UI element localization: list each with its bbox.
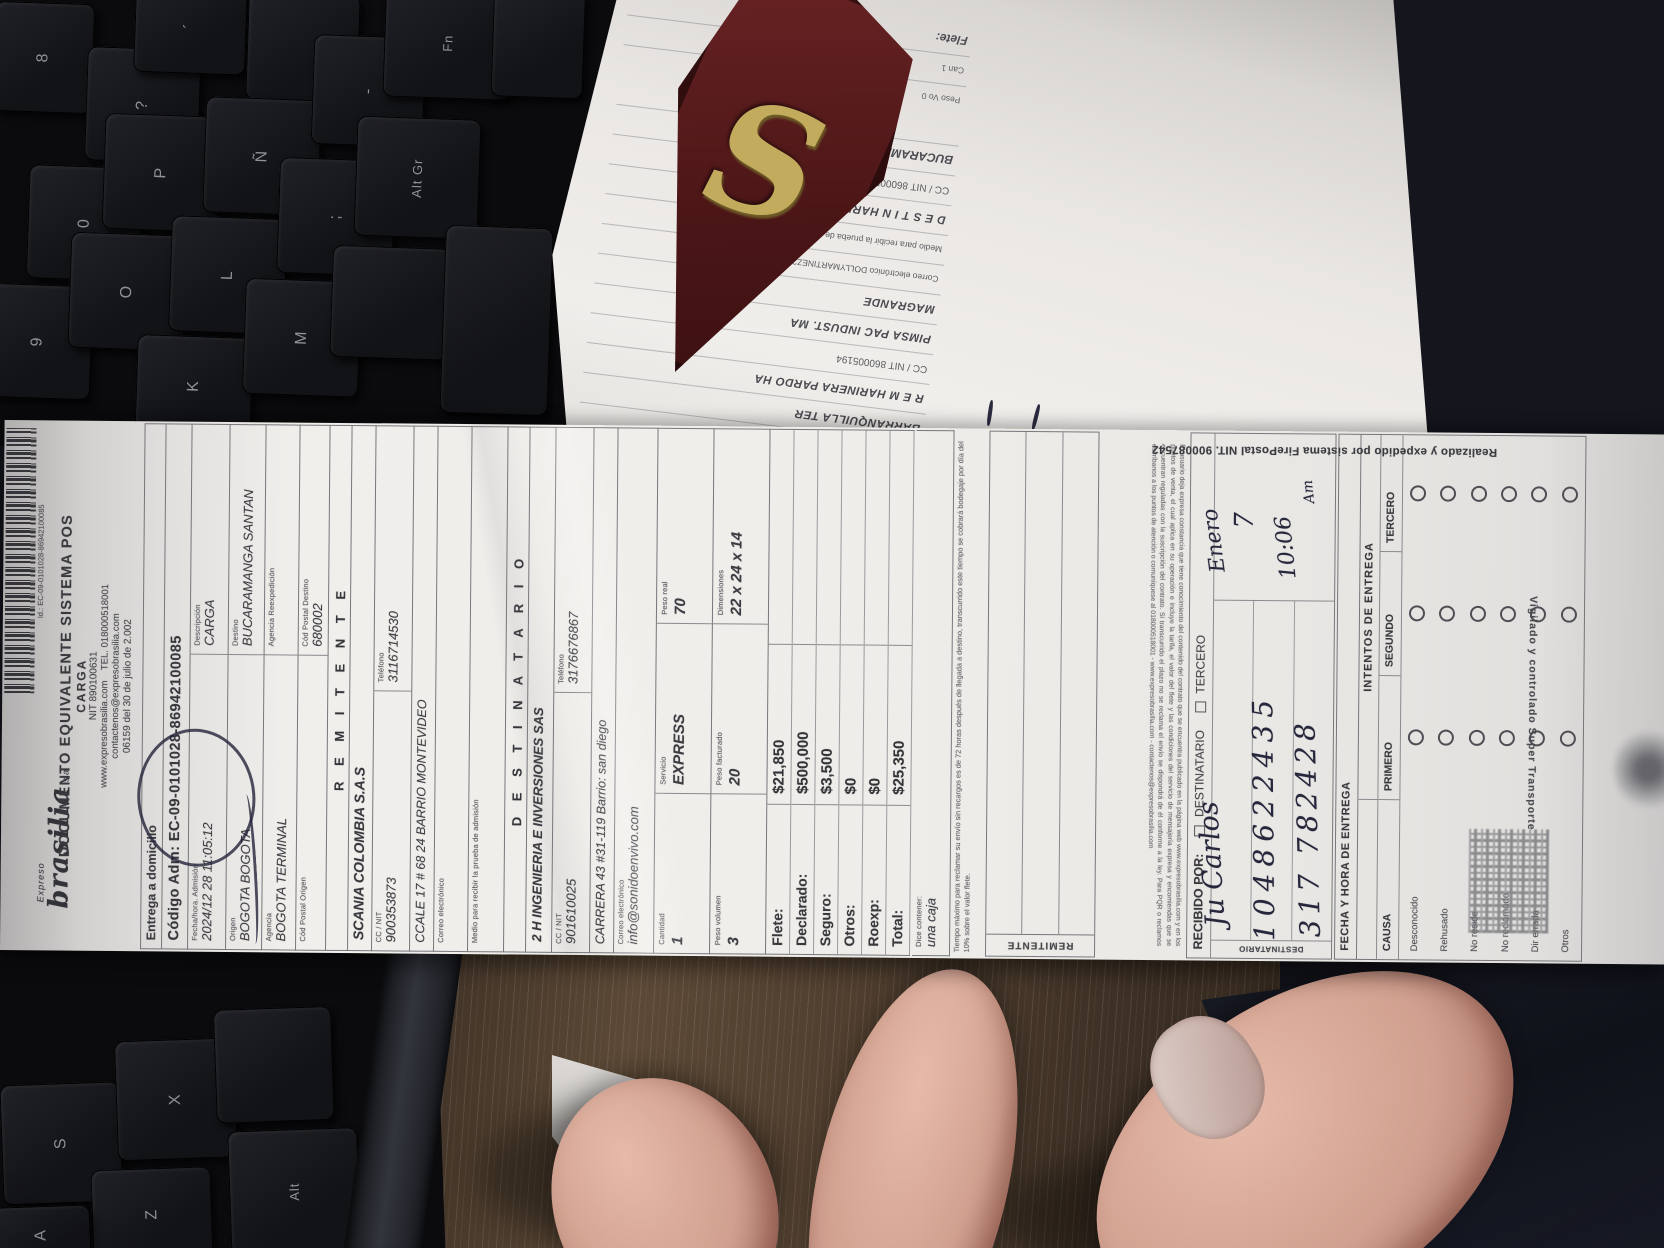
attempt-circle xyxy=(1561,607,1577,623)
charge-row-total: Total: $25,350 xyxy=(886,431,915,955)
key-label: ´ xyxy=(182,22,200,29)
dimensions-value: 22 x 24 x 14 xyxy=(728,429,747,615)
attempts-title-spacer xyxy=(1357,799,1377,959)
photo-scene: 8 ? 0 9 ´ P O Ñ L K - ; M Fn Alt Gr Cód.… xyxy=(0,0,1664,1248)
legal-note-upside-down: El usuario deja expresa constancia que t… xyxy=(1098,444,1186,947)
attempt-circle xyxy=(1438,730,1454,746)
sender-phone: 3116714530 xyxy=(385,426,402,682)
attempt-circle xyxy=(1439,606,1455,622)
key-label: Alt xyxy=(286,1182,302,1201)
charges-table: Flete: $21,850 Declarado: $500,000 Segur… xyxy=(766,429,915,956)
charge-value: $3,500 xyxy=(815,644,839,804)
attempt-circle xyxy=(1409,605,1425,621)
sender-signature-cells xyxy=(986,432,1098,935)
shipping-receipt: Id.: EC-09-0101028-86942100085 Expreso b… xyxy=(0,420,1664,965)
key-label: Fn xyxy=(440,34,456,52)
sender-signature-label: REMITENTE xyxy=(1007,940,1074,952)
recipient-phone: 3176676867 xyxy=(565,428,582,684)
causa-header: CAUSA xyxy=(1377,799,1399,959)
attempt-circle xyxy=(1531,486,1547,502)
real-weight-label: Peso real xyxy=(660,429,671,615)
charge-label: Total: xyxy=(886,805,910,955)
reexpedition-label: Agencia Reexpedición xyxy=(267,425,278,646)
key-label: Z xyxy=(143,1209,161,1220)
signature-cell xyxy=(986,432,1027,934)
key-z: Z xyxy=(90,1166,213,1248)
key-label: ? xyxy=(134,100,152,111)
charge-label: Declarado: xyxy=(790,804,814,954)
key-label: X xyxy=(167,1093,185,1105)
charge-value: $500,000 xyxy=(791,644,815,804)
key-blank xyxy=(490,0,586,99)
pen-stroke xyxy=(1031,404,1041,430)
recipient-nit: 901610025 xyxy=(563,693,580,944)
cause-row: Rehusado xyxy=(1429,435,1464,959)
col-segundo: SEGUNDO xyxy=(1379,551,1401,675)
contents-row: Dice contener: una caja xyxy=(912,430,955,956)
key-label: P xyxy=(152,167,170,179)
key-label: - xyxy=(359,87,377,94)
signature-cell xyxy=(1059,432,1099,934)
sender-nit: 900353873 xyxy=(383,691,400,942)
postal-origin-label: Cód Postal Origen xyxy=(298,656,309,942)
agency-value: BOGOTA TERMINAL xyxy=(273,655,290,941)
recipient-id-row: CC / NIT 901610025 Teléfono 3176676867 xyxy=(552,427,595,953)
handwritten-phone: 317 782428 xyxy=(1288,718,1327,938)
charge-value: $0 xyxy=(863,645,887,805)
description-value: CARGA xyxy=(202,425,219,646)
vol-weight-value: 3 xyxy=(725,794,743,945)
attempt-circle xyxy=(1501,486,1517,502)
postal-codes-row: Cód Postal Origen Cód Postal Destino 680… xyxy=(296,425,331,951)
admission-row: Fecha/hora. Admisión 2024/12 28 11:05:12… xyxy=(188,424,231,950)
attempt-circle xyxy=(1500,606,1516,622)
key-a: A xyxy=(0,1204,92,1248)
key-label: O xyxy=(118,285,136,299)
agency-row: Agencia BOGOTA TERMINAL Agencia Reexpedi… xyxy=(262,424,301,950)
key-label: L xyxy=(219,270,237,281)
recipient-email-row: Correo electrónico info@sonidoenvivo.com xyxy=(614,427,659,953)
option-tercero: TERCERO xyxy=(1193,635,1208,694)
proof-medium-row: Medio para recibir la prueba de admisión xyxy=(468,426,509,952)
signature-cell xyxy=(1023,432,1064,934)
received-side-label: DESTINATARIO xyxy=(1239,945,1304,955)
key-blank xyxy=(329,245,451,361)
key-8: 8 xyxy=(0,1,95,114)
charge-label: Roexp: xyxy=(862,805,886,955)
dimensions-label: Dimensiones xyxy=(716,429,727,615)
key-blank xyxy=(439,225,553,417)
handwritten-day: 7 xyxy=(1230,512,1260,529)
key-label: 0 xyxy=(76,218,94,229)
charge-label: Seguro: xyxy=(814,804,838,954)
col-primero: PRIMERO xyxy=(1378,675,1400,799)
postal-dest-value: 680002 xyxy=(310,426,327,647)
cause-label: Rehusado xyxy=(1439,800,1451,960)
sender-email-label: Correo electrónico xyxy=(436,427,450,943)
received-side-strip: DESTINATARIO xyxy=(1211,940,1331,959)
attempt-circle xyxy=(1408,729,1424,745)
attempt-circle xyxy=(1469,730,1485,746)
charge-value: $25,350 xyxy=(887,645,911,805)
attempt-circle xyxy=(1562,487,1578,503)
key-alt: Alt xyxy=(227,1127,361,1248)
key-label: ; xyxy=(327,214,345,220)
key-altgr: Alt Gr xyxy=(353,116,481,240)
key-label: A xyxy=(32,1229,50,1241)
pen-stroke xyxy=(986,400,994,426)
service-value: EXPRESS xyxy=(670,624,688,785)
service-label: Servicio xyxy=(658,624,668,785)
charge-label: Otros: xyxy=(838,804,862,954)
qty-label: Cantidad xyxy=(657,794,667,945)
handwritten-meridiem: Am xyxy=(1300,479,1318,504)
cause-label: Desconocido xyxy=(1409,799,1421,959)
key-label: S xyxy=(52,1137,70,1149)
attempt-circle xyxy=(1410,485,1426,501)
charge-value: $0 xyxy=(839,644,863,804)
cause-row: Desconocido xyxy=(1399,435,1434,959)
billed-weight-value: 20 xyxy=(726,624,744,785)
sender-signature-strip: REMITENTE xyxy=(986,934,1094,957)
key-label: 8 xyxy=(34,52,52,63)
claim-note: Tiempo máximo para reclamar su envío sin… xyxy=(952,436,976,952)
real-weight-value: 70 xyxy=(672,429,691,615)
recipient-email: info@sonidoenvivo.com xyxy=(625,428,645,944)
key-label: Alt Gr xyxy=(409,158,425,198)
key-blank xyxy=(213,1006,335,1124)
charge-label: Flete: xyxy=(766,804,790,954)
superman-s-glyph: S xyxy=(689,63,842,262)
attempt-circle xyxy=(1471,486,1487,502)
qty-value: 1 xyxy=(669,794,687,945)
cause-label: Otros xyxy=(1560,801,1572,961)
key-label: K xyxy=(185,380,203,392)
keyboard-top: 8 ? 0 9 ´ P O Ñ L K - ; M Fn Alt Gr xyxy=(0,0,644,468)
company-tel: TEL. 018000518001 xyxy=(99,584,111,670)
sender-id-row: CC / NIT 900353873 Teléfono 3116714530 xyxy=(372,425,415,951)
barcode xyxy=(4,428,36,693)
barcode-id: Id.: EC-09-0101028-86942100085 xyxy=(35,430,46,692)
contents-value: una caja xyxy=(923,431,943,947)
charge-value: $21,850 xyxy=(767,644,791,804)
attempt-circle xyxy=(1560,731,1576,747)
package-row-2: Peso volumen 3 Peso facturado 20 Dimensi… xyxy=(710,428,771,954)
vol-weight-label: Peso volumen xyxy=(713,794,723,945)
key-acute: ´ xyxy=(133,0,248,76)
key-label: Ñ xyxy=(253,150,271,163)
billed-weight-label: Peso facturado xyxy=(714,624,724,785)
package-row-1: Cantidad 1 Servicio EXPRESS Peso real 70 xyxy=(654,428,715,954)
attempt-circle xyxy=(1470,606,1486,622)
sender-email-row: Correo electrónico xyxy=(434,426,473,952)
attempts-title: INTENTOS DE ENTREGA xyxy=(1358,435,1380,799)
handwritten-id-number: 1048622435 xyxy=(1246,693,1281,941)
key-label: 9 xyxy=(28,336,46,347)
sender-signature-box: REMITENTE xyxy=(985,431,1100,958)
attempt-circle xyxy=(1440,486,1456,502)
cause-row: Otros xyxy=(1551,437,1586,961)
attempt-circle xyxy=(1499,730,1515,746)
proof-medium-label: Medio para recibir la prueba de admisión xyxy=(470,427,484,943)
checkbox-tercero-icon xyxy=(1195,702,1206,713)
destination-value: BUCARAMANGA SANTAN xyxy=(240,425,257,646)
qr-stamp xyxy=(1468,829,1549,934)
ink-stamp-smudge xyxy=(1613,729,1664,810)
key-label: M xyxy=(293,330,311,345)
